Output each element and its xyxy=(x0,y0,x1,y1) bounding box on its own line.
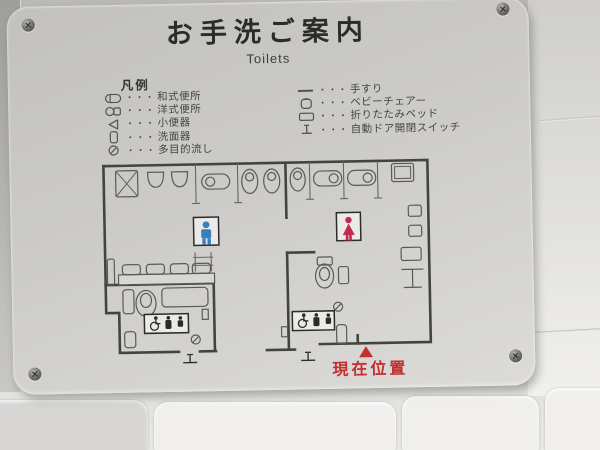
auto-door-switch-symbol xyxy=(301,352,315,360)
floor-plan: 現在位置 xyxy=(87,149,441,391)
wall-panel-right xyxy=(528,0,600,396)
folding-bed-icon xyxy=(296,109,316,123)
washbasin-icon xyxy=(104,130,124,144)
toilet-guide-sign-plate: お手洗ご案内 Toilets 凡例 ・・・ 和式便所 ・・・ 洋式便所 xyxy=(6,0,535,395)
legend-right-column: ・・・ 手すり ・・・ ベビーチェアー ・・・ 折りたたみベッド xyxy=(296,80,461,136)
womens-stall-partitions xyxy=(305,161,382,199)
urinal-icon xyxy=(103,117,123,131)
screw-icon xyxy=(28,367,41,380)
auto-door-switch-symbol xyxy=(183,354,197,362)
current-location-arrow xyxy=(359,346,373,357)
wall-tile xyxy=(154,402,396,450)
baby-chair-icon xyxy=(296,96,316,110)
mens-stall-partitions xyxy=(191,164,242,204)
women-pictogram xyxy=(336,212,361,240)
men-pictogram xyxy=(193,217,219,245)
auto-door-switch-icon xyxy=(297,122,317,136)
current-location-marker: 現在位置 xyxy=(332,345,409,378)
sign-header: お手洗ご案内 Toilets xyxy=(6,5,529,71)
photo-of-toilet-guide-sign: お手洗ご案内 Toilets 凡例 ・・・ 和式便所 ・・・ 洋式便所 xyxy=(0,0,600,450)
current-location-label: 現在位置 xyxy=(332,358,408,378)
legend-item-auto-door-switch: ・・・ 自動ドア開閉スイッチ xyxy=(297,120,461,136)
screw-icon xyxy=(509,349,522,362)
wall-tile xyxy=(402,396,539,450)
western-toilet-icon xyxy=(103,104,123,118)
wall-tile xyxy=(545,388,600,450)
accessible-room-right xyxy=(280,257,350,361)
handrail-icon xyxy=(296,83,316,97)
wall-tile xyxy=(0,400,148,450)
washbasin-counter xyxy=(118,252,215,285)
legend-left-column: ・・・ 和式便所 ・・・ 洋式便所 ・・・ 小便器 xyxy=(103,89,213,157)
